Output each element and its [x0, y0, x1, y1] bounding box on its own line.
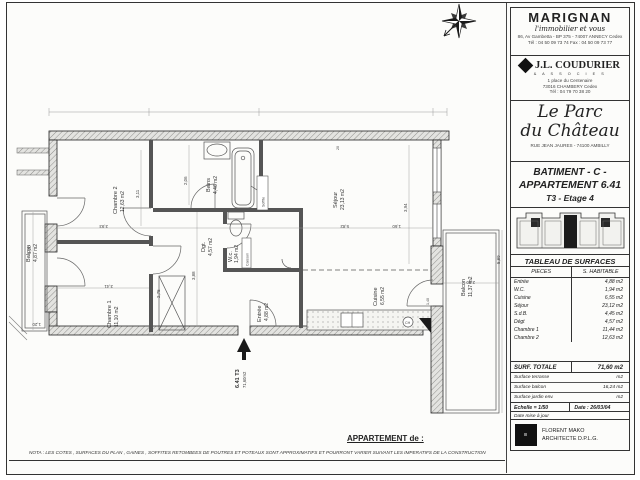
- entry-marker: 6.41 T3 71,60m2: [235, 338, 251, 388]
- agency-address: 86, Av Gambetta - BP 375 - 74007 ANNECY …: [511, 34, 629, 40]
- dim-label: 3,41: [104, 284, 113, 289]
- entry-area-label: 71,60m2: [242, 371, 247, 388]
- toilet-tank-icon: [228, 212, 244, 219]
- dim-label: 3,11: [135, 189, 140, 198]
- surfaces-col-habitable: S. HABITABLE: [572, 267, 629, 277]
- table-row: S.d.B.4,45 m2: [511, 310, 629, 318]
- project-address: RUE JEAN JAURES - 74100 AMBILLY: [511, 143, 629, 149]
- surfaces-col-pieces: PIECES: [511, 267, 572, 277]
- kitchen-fixtures: [307, 310, 431, 333]
- room-label-balcon-est: Balcon: [461, 279, 467, 296]
- compass-rose-icon: [437, 3, 483, 47]
- agency-name: MARIGNAN: [511, 11, 629, 25]
- building-key-plan: [510, 207, 630, 255]
- table-row: W.C.1,94 m2: [511, 286, 629, 294]
- room-area-balcon-est: 11,37 m2: [468, 276, 474, 297]
- balcon-est-railing: [443, 230, 499, 413]
- agency-phone: Tél : 04 50 09 73 74 Fax : 04 50 09 73 7…: [511, 40, 629, 46]
- unit-type-floor: T3 - Etage 4: [511, 192, 629, 204]
- footer-divider: [9, 460, 505, 461]
- dim-label: 1,40: [426, 298, 430, 305]
- surface-total-value: 71,60 m2: [572, 362, 629, 372]
- firm-block: J.L. COUDURIER & A S S O C I E S 1 place…: [510, 55, 630, 101]
- balcon-ouest-railing: [22, 211, 47, 331]
- dim-label: 3,94: [403, 203, 408, 212]
- room-label-sejour: Séjour: [333, 192, 339, 208]
- unit-block: BATIMENT - C - APPARTEMENT 6.41 T3 - Eta…: [510, 161, 630, 208]
- washbasin-counter: [204, 142, 230, 159]
- room-area-entree: 4,88 m2: [264, 303, 270, 321]
- soffite-label: Soffite: [262, 197, 266, 207]
- dim-label: 3,88: [191, 271, 196, 280]
- dim-label: 5,82: [340, 224, 349, 229]
- floor-plan: 3,93 3,11 2,06 5,82 3,94 2,75 3,41 4,20 …: [7, 3, 506, 459]
- entry-arrow-icon: [237, 338, 251, 360]
- dim-label: 5,89: [496, 255, 501, 264]
- room-area-bains: 4,46 m2: [213, 176, 219, 194]
- scale-label: Echelle = 1/50: [511, 403, 570, 411]
- table-row: Chambre 212,63 m2: [511, 334, 629, 342]
- unit-apartment: APPARTEMENT 6.41: [511, 179, 629, 192]
- entry-unit-label: 6.41 T3: [235, 369, 241, 388]
- dim-label: 3,93: [99, 224, 108, 229]
- agency-tagline: l'immobilier et vous: [511, 25, 629, 34]
- extra-surfaces-block: Surface terrassem2 Surface balcon16,24 m…: [510, 372, 630, 403]
- firm-subtitle: & A S S O C I E S: [511, 72, 629, 76]
- table-row: Séjour23,12 m2: [511, 302, 629, 310]
- surfaces-table: PIECES S. HABITABLE Entrée4,88 m2 W.C.1,…: [510, 266, 630, 362]
- project-name-line2: du Château: [511, 122, 629, 141]
- unit-building: BATIMENT - C -: [511, 166, 629, 179]
- dim-label: 2,75: [156, 289, 161, 298]
- table-row: Cuisine6,55 m2: [511, 294, 629, 302]
- table-row: Surface terrassem2: [511, 373, 629, 383]
- room-label-bains: Bains: [206, 178, 212, 192]
- room-area-chambre2: 12,63 m2: [120, 191, 126, 212]
- room-label-dgt: Dgt.: [201, 241, 207, 252]
- architect-title: ARCHITECTE D.P.L.G.: [542, 435, 598, 443]
- room-label-chambre2: Chambre 2: [113, 186, 119, 214]
- washbasin-icon: [207, 144, 227, 156]
- table-row: Entrée4,88 m2: [511, 278, 629, 286]
- room-label-cuisine: Cuisine: [373, 287, 379, 306]
- top-dimension-line: [49, 108, 447, 116]
- room-area-sejour: 23,13 m2: [340, 189, 346, 210]
- firm-name: J.L. COUDURIER: [535, 60, 620, 71]
- table-row: Chambre 111,44 m2: [511, 326, 629, 334]
- architect-logo-icon: [515, 424, 537, 446]
- wc-basin-icon: [282, 259, 291, 268]
- project-block: Le Parc du Château RUE JEAN JAURES - 741…: [510, 100, 630, 162]
- neighbour-walls: [9, 148, 49, 340]
- room-area-balcon-ouest: 4,87 m2: [33, 244, 39, 262]
- dim-label: 1,60: [392, 224, 401, 229]
- diamond-logo-icon: [518, 58, 534, 74]
- date-label: Date : 26/03/04: [570, 403, 629, 411]
- surface-total-label: SURF. TOTALE: [511, 362, 572, 372]
- room-label-balcon-ouest: Balcon: [26, 245, 32, 262]
- apartment-of-label: APPARTEMENT de :: [347, 434, 424, 443]
- room-label-chambre1: Chambre 1: [107, 300, 113, 328]
- nota-text: NOTA : LES COTES , SURFACES DU PLAN , GA…: [29, 450, 505, 455]
- title-block: MARIGNAN l'immobilier et vous 86, Av Gam…: [506, 3, 633, 473]
- dim-label: 20: [336, 146, 340, 150]
- table-row: Surface balcon16,24 m2: [511, 383, 629, 393]
- table-row: Surface jardin env.m2: [511, 393, 629, 402]
- placard-icon: [159, 276, 185, 330]
- room-area-dgt: 4,57 m2: [208, 238, 214, 256]
- table-row: Dégt4,57 m2: [511, 318, 629, 326]
- firm-phone: Tél : 04 79 70 38 20: [511, 89, 629, 95]
- water-heater-label: CH: [405, 321, 411, 325]
- dim-label: 2,06: [183, 176, 188, 185]
- plan-sheet: 3,93 3,11 2,06 5,82 3,94 2,75 3,41 4,20 …: [6, 2, 635, 475]
- room-area-chambre1: 11,10 m2: [114, 306, 120, 327]
- dim-label: 1,20: [32, 322, 41, 327]
- room-label-entree: Entrée: [257, 306, 263, 322]
- room-area-cuisine: 6,55 m2: [380, 287, 386, 305]
- caisson-label: Caisson: [246, 253, 250, 266]
- agency-block: MARIGNAN l'immobilier et vous 86, Av Gam…: [510, 7, 630, 56]
- architect-block: FLORENT MAKO ARCHITECTE D.P.L.G.: [510, 419, 630, 451]
- architect-name: FLORENT MAKO: [542, 427, 598, 435]
- room-area-wc: 1,94 m2: [234, 245, 240, 263]
- project-name-line1: Le Parc: [511, 103, 629, 122]
